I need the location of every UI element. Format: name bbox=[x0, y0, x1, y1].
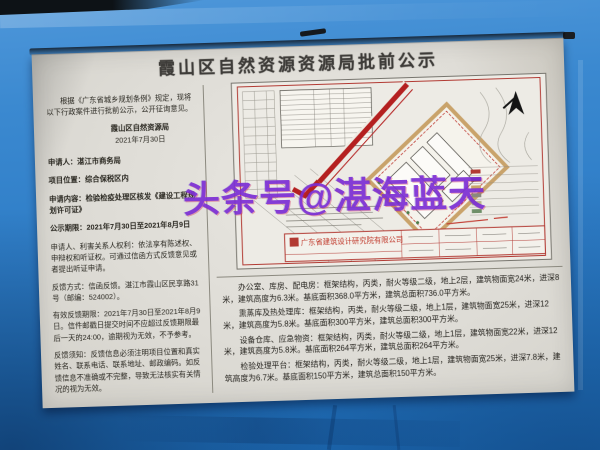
photo-notice-on-tarp: 霞山区自然资源资源局批前公示 根据《广东省城乡规划条例》规定，现将以下行政案件进… bbox=[0, 0, 600, 450]
feedback-method-paragraph: 反馈方式：信函反馈。湛江市霞山区民享路31号（邮编：524002）。 bbox=[52, 277, 205, 304]
feedback-deadline-paragraph: 有效反馈期限：2021年7月30日至2021年8月9日。信件邮戳日提交时间不应超… bbox=[53, 305, 206, 344]
notice-body: 根据《广东省城乡规划条例》规定，现将以下行政案件进行批前公示，公开征询意见。 霞… bbox=[43, 72, 567, 400]
notice-sheet: 霞山区自然资源资源局批前公示 根据《广东省城乡规划条例》规定，现将以下行政案件进… bbox=[32, 38, 575, 409]
right-column: 广东省建筑设计研究院有限公司 办公室、库房、配电房：框架结构，丙类，耐火等级二级… bbox=[211, 72, 567, 395]
field-period: 公示期限：2021年7月30日至2021年8月9日 bbox=[50, 219, 202, 235]
left-column: 根据《广东省城乡规划条例》规定，现将以下行政案件进行批前公示，公开征询意见。 霞… bbox=[46, 91, 208, 401]
rights-paragraph: 申请人、利害关系人权利：依法享有陈述权、申辩权和听证权。可通过信函方式反馈意见或… bbox=[50, 237, 203, 276]
intro-paragraph: 根据《广东省城乡规划条例》规定，现将以下行政案件进行批前公示，公开征询意见。 bbox=[46, 91, 199, 118]
field-location: 项目位置：综合保税区内 bbox=[48, 171, 200, 187]
field-content: 申请内容：检验检疫处理区核发《建设工程规划许可证》 bbox=[49, 189, 202, 216]
feedback-notes-paragraph: 反馈须知：反馈信息必须注明项目位置和真实姓名、联系电话、联系地址、邮政编码。如反… bbox=[54, 345, 207, 395]
design-firm-logo bbox=[290, 237, 299, 246]
field-applicant: 申请人：湛江市商务局 bbox=[48, 152, 200, 168]
building-specs: 办公室、库房、配电房：框架结构，丙类，耐火等级二级，地上2层，建筑物面宽24米，… bbox=[222, 272, 564, 388]
watermark-overlay: 头条号@湛海蓝天 bbox=[182, 163, 486, 224]
